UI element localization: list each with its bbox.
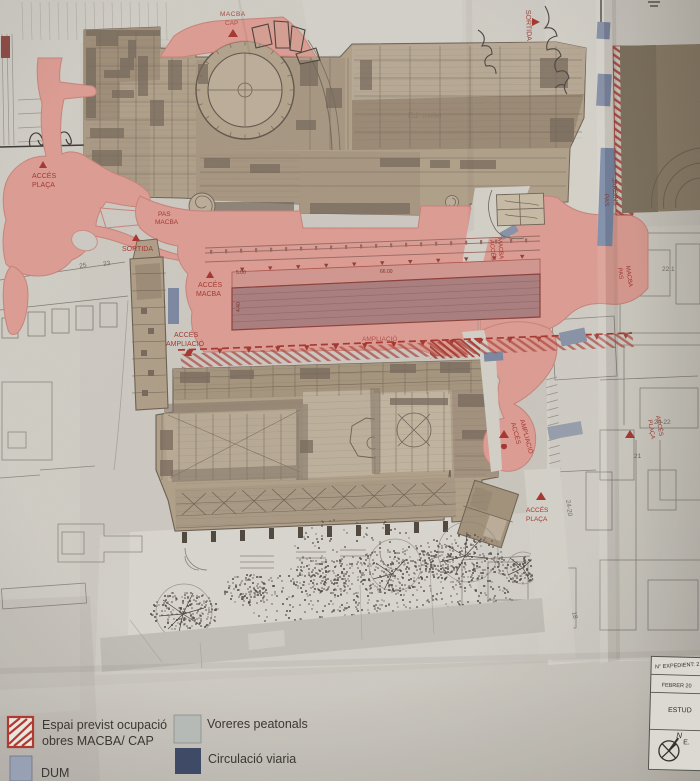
svg-text:Voreres peatonals: Voreres peatonals xyxy=(207,717,308,731)
svg-text:E.: E. xyxy=(683,739,690,746)
svg-text:FEBRER 20: FEBRER 20 xyxy=(662,683,692,690)
svg-text:DUM: DUM xyxy=(41,766,69,780)
svg-text:Circulació viaria: Circulació viaria xyxy=(208,752,296,766)
svg-text:Espai previst ocupació: Espai previst ocupació xyxy=(42,718,167,732)
svg-text:ESTUD: ESTUD xyxy=(668,707,692,715)
svg-text:N: N xyxy=(676,731,682,740)
svg-text:obres MACBA/ CAP: obres MACBA/ CAP xyxy=(42,734,154,748)
